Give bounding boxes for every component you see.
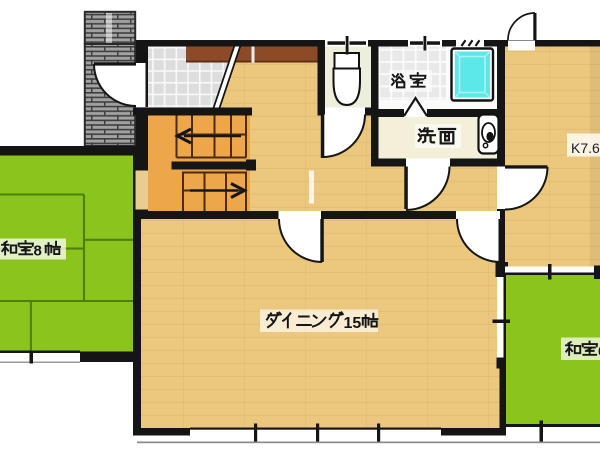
svg-text:15: 15 (344, 315, 362, 332)
svg-text:K7.6: K7.6 (571, 140, 600, 156)
svg-text:8: 8 (34, 243, 42, 260)
